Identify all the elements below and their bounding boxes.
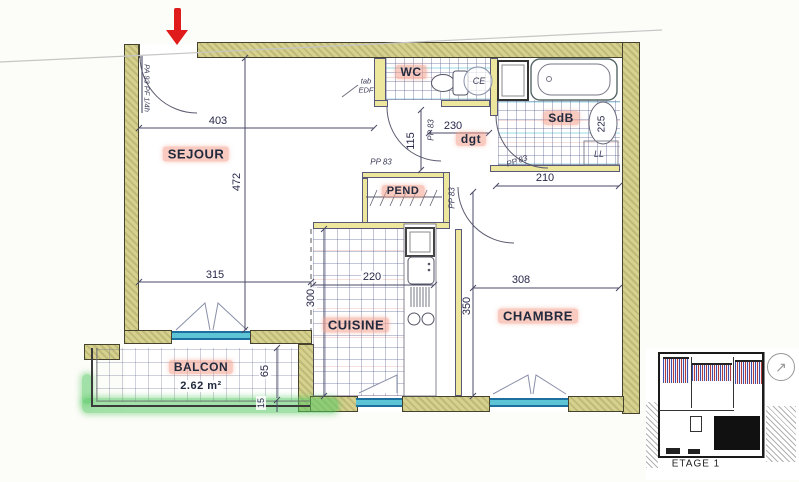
inset-caption: ETAGE 1: [672, 459, 721, 470]
wall-bottom-2: [402, 396, 490, 412]
floor-plan: SEJOUR WC SdB dgt PEND CUISINE CHAMBRE B…: [0, 0, 799, 482]
door-spec-pp83-hall: PP 83: [427, 119, 436, 141]
chambre-window: [490, 398, 568, 407]
partition-cuisine-top: [313, 222, 450, 229]
room-label-cuisine: CUISINE: [323, 318, 389, 333]
sejour-window: [172, 331, 250, 340]
inset-stair-detail: [690, 416, 702, 432]
dim-230: 230: [444, 120, 462, 132]
partition-wc-bottom-right: [441, 100, 490, 107]
compass-icon: ↗: [767, 353, 795, 381]
dim-225: 225: [597, 116, 608, 133]
room-label-sejour: SEJOUR: [163, 147, 229, 162]
edf-label-line1: tab: [361, 77, 371, 86]
entrance-arrow-shaft: [174, 8, 181, 32]
water-heater-label: CE: [473, 76, 486, 86]
inset-wall-h1: [659, 410, 734, 411]
dim-350: 350: [461, 297, 473, 315]
dim-315: 315: [206, 269, 224, 281]
wall-sejour-balcon-left: [124, 330, 172, 344]
dim-65: 65: [259, 363, 271, 379]
inset-margin-line: [764, 352, 765, 458]
inset-wall-v1: [691, 357, 692, 408]
washing-machine-label: LL: [594, 149, 604, 159]
dim-15: 15: [256, 396, 266, 410]
inset-roof-right: [735, 360, 762, 384]
entrance-arrow-head: [166, 30, 188, 45]
dim-308: 308: [512, 274, 530, 286]
inset-entry-block-2: [688, 449, 700, 454]
entrance-door-spec: PA 93 PF 1/4h: [143, 64, 152, 112]
partition-wc-sdb: [490, 58, 498, 116]
inset-hatch-left: [646, 402, 658, 468]
dim-300: 300: [305, 287, 317, 309]
balcon-area-label: 2.62 m²: [178, 380, 223, 392]
wall-bottom-3: [568, 396, 624, 412]
room-label-wc: WC: [396, 65, 427, 79]
room-label-sdb: SdB: [543, 111, 579, 125]
cuisine-floor-tiles: [313, 229, 404, 396]
partition-wc-bottom-left: [374, 100, 388, 107]
inset-entry-block-1: [666, 448, 680, 454]
dim-115: 115: [405, 132, 417, 150]
wall-sejour-balcon-right: [250, 330, 312, 344]
green-marker-left: [82, 374, 92, 404]
inset-roof-middle: [692, 363, 732, 381]
inset-highlighted-apartment: [714, 416, 760, 450]
inset-wall-v2: [733, 357, 734, 408]
partition-pend-top: [362, 172, 450, 178]
cuisine-window: [356, 398, 402, 407]
dim-472: 472: [231, 173, 243, 191]
green-marker-bottom: [82, 398, 338, 413]
dim-403: 403: [209, 115, 227, 127]
room-label-pend: PEND: [382, 185, 425, 197]
partition-pend-left: [362, 178, 368, 228]
dim-210: 210: [536, 172, 554, 184]
wall-top: [197, 42, 624, 58]
dim-220: 220: [361, 271, 383, 283]
door-spec-pp83-chambre: PP 83: [448, 187, 457, 209]
inset-roof-left: [663, 357, 689, 383]
door-spec-pp83-sejour: PP 83: [370, 158, 392, 167]
edf-label-line2: EDF: [359, 86, 374, 95]
location-inset: ↗ ETAGE 1: [646, 348, 799, 480]
inset-hatch-right: [766, 406, 796, 462]
room-label-chambre: CHAMBRE: [498, 309, 578, 324]
room-label-balcon: BALCON: [169, 360, 233, 374]
wall-left: [124, 44, 139, 334]
wall-right: [622, 42, 640, 414]
room-label-dgt: dgt: [456, 132, 486, 146]
